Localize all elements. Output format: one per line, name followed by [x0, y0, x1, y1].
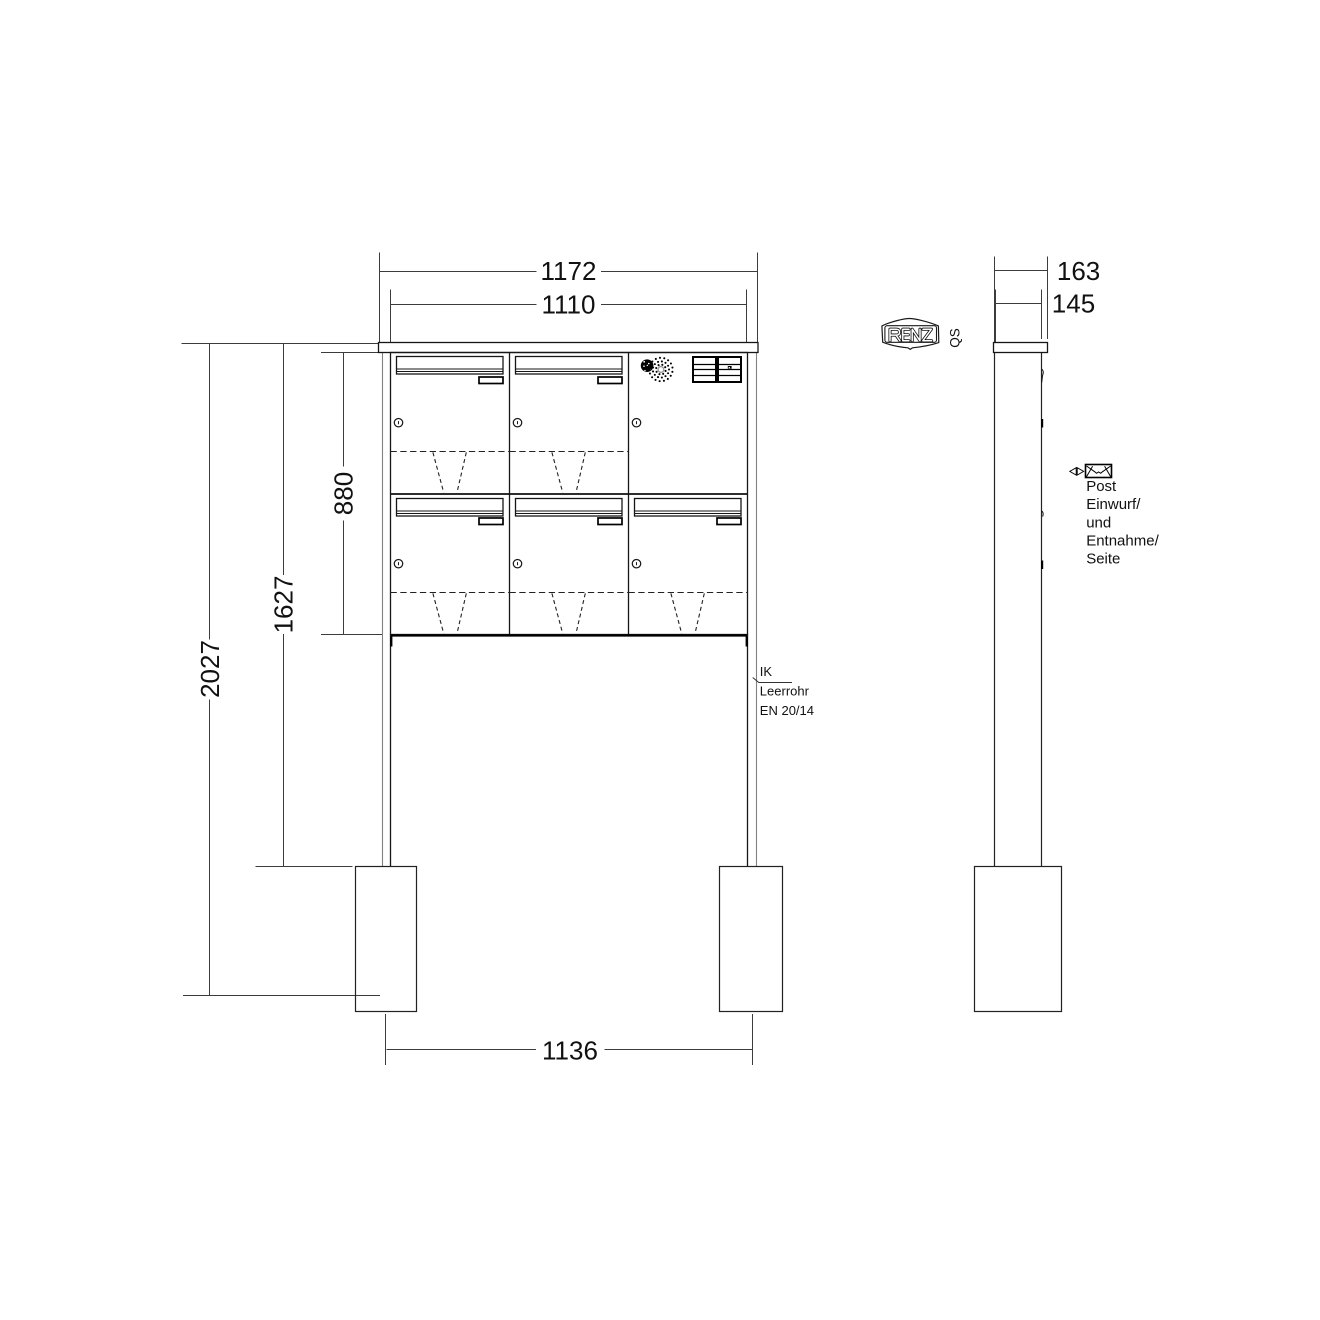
- svg-text:Seite: Seite: [1086, 551, 1120, 568]
- svg-text:und: und: [1086, 514, 1111, 531]
- svg-text:1172: 1172: [541, 256, 597, 286]
- svg-text:Post: Post: [1086, 478, 1117, 495]
- svg-text:2027: 2027: [195, 640, 225, 698]
- svg-text:880: 880: [328, 472, 358, 515]
- svg-text:145: 145: [1052, 289, 1095, 319]
- svg-text:Leerrohr: Leerrohr: [760, 683, 810, 698]
- svg-text:Entnahme/: Entnahme/: [1086, 533, 1159, 550]
- svg-text:163: 163: [1057, 256, 1100, 286]
- svg-text:1110: 1110: [542, 290, 596, 320]
- svg-text:EN 20/14: EN 20/14: [760, 703, 814, 718]
- svg-text:1627: 1627: [269, 576, 299, 634]
- svg-text:1136: 1136: [542, 1035, 598, 1065]
- svg-text:QS: QS: [948, 328, 963, 348]
- svg-text:Einwurf/: Einwurf/: [1086, 496, 1141, 513]
- svg-text:IK: IK: [760, 664, 773, 679]
